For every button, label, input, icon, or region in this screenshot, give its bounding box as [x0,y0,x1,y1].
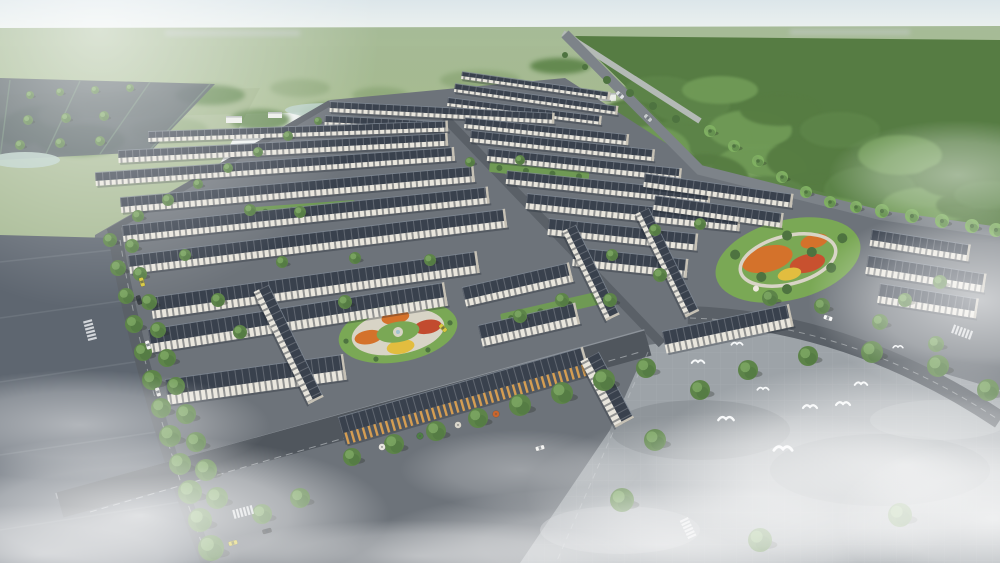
tree [672,115,680,123]
canopy-highlight [650,225,656,231]
tree [562,52,568,58]
tree [649,102,657,110]
canopy-highlight [340,297,347,304]
canopy-highlight [425,255,431,261]
canopy-highlight [800,348,810,358]
canopy-highlight [516,156,521,161]
canopy-highlight [515,311,522,318]
canopy-highlight [350,253,356,259]
canopy-highlight [740,362,750,372]
canopy-highlight [428,423,438,433]
canopy-highlight [213,295,220,302]
median-shrub [649,102,657,110]
median-shrub [603,76,611,84]
palm-crown [756,159,760,163]
canopy-highlight [470,410,480,420]
median-shrub [562,52,568,58]
canopy-highlight [655,270,662,277]
median-shrub [672,115,680,123]
cafe-umbrella [417,433,424,440]
canopy-highlight [386,436,396,446]
canopy-highlight [595,371,606,382]
tree [582,64,588,70]
canopy-highlight [160,351,169,360]
canopy-highlight [235,327,242,334]
canopy-highlight [511,396,522,407]
canopy-highlight [557,295,564,302]
umbrella-pole [381,446,382,447]
bird-body [697,361,699,363]
canopy-highlight [605,295,612,302]
canopy-highlight [638,360,648,370]
umbrella-pole [495,413,496,414]
fog-cloud [400,430,640,510]
aerial-development-render [0,0,1000,563]
cafe-umbrella [455,422,462,429]
bird-body [736,343,738,345]
palm-crown [732,144,736,148]
palm-crown [828,200,832,204]
cafe-umbrella [379,444,386,451]
canopy-highlight [127,317,136,326]
canopy-highlight [553,384,564,395]
distant-tree-cluster [530,58,590,74]
tree [603,76,611,84]
cafe-umbrella [493,411,500,418]
render-canvas [0,0,1000,563]
forest-canopy-blob [682,76,758,104]
canopy-highlight [466,158,471,163]
canopy-highlight [345,450,354,459]
distant-city [790,29,910,35]
canopy-highlight [277,257,283,263]
palm-crown [804,190,808,194]
median-shrub [626,89,634,97]
tree [626,89,634,97]
canopy-highlight [607,250,613,256]
palm-crown [708,129,712,133]
canopy-highlight [152,324,160,332]
canopy-highlight [136,345,145,354]
canopy-highlight [764,292,772,300]
umbrella-pole [457,424,458,425]
palm-crown [780,175,784,179]
gable-end-wall [445,121,448,132]
median-shrub [582,64,588,70]
canopy-highlight [695,219,701,225]
umbrella-pole [419,435,420,436]
canopy-highlight [692,382,702,392]
